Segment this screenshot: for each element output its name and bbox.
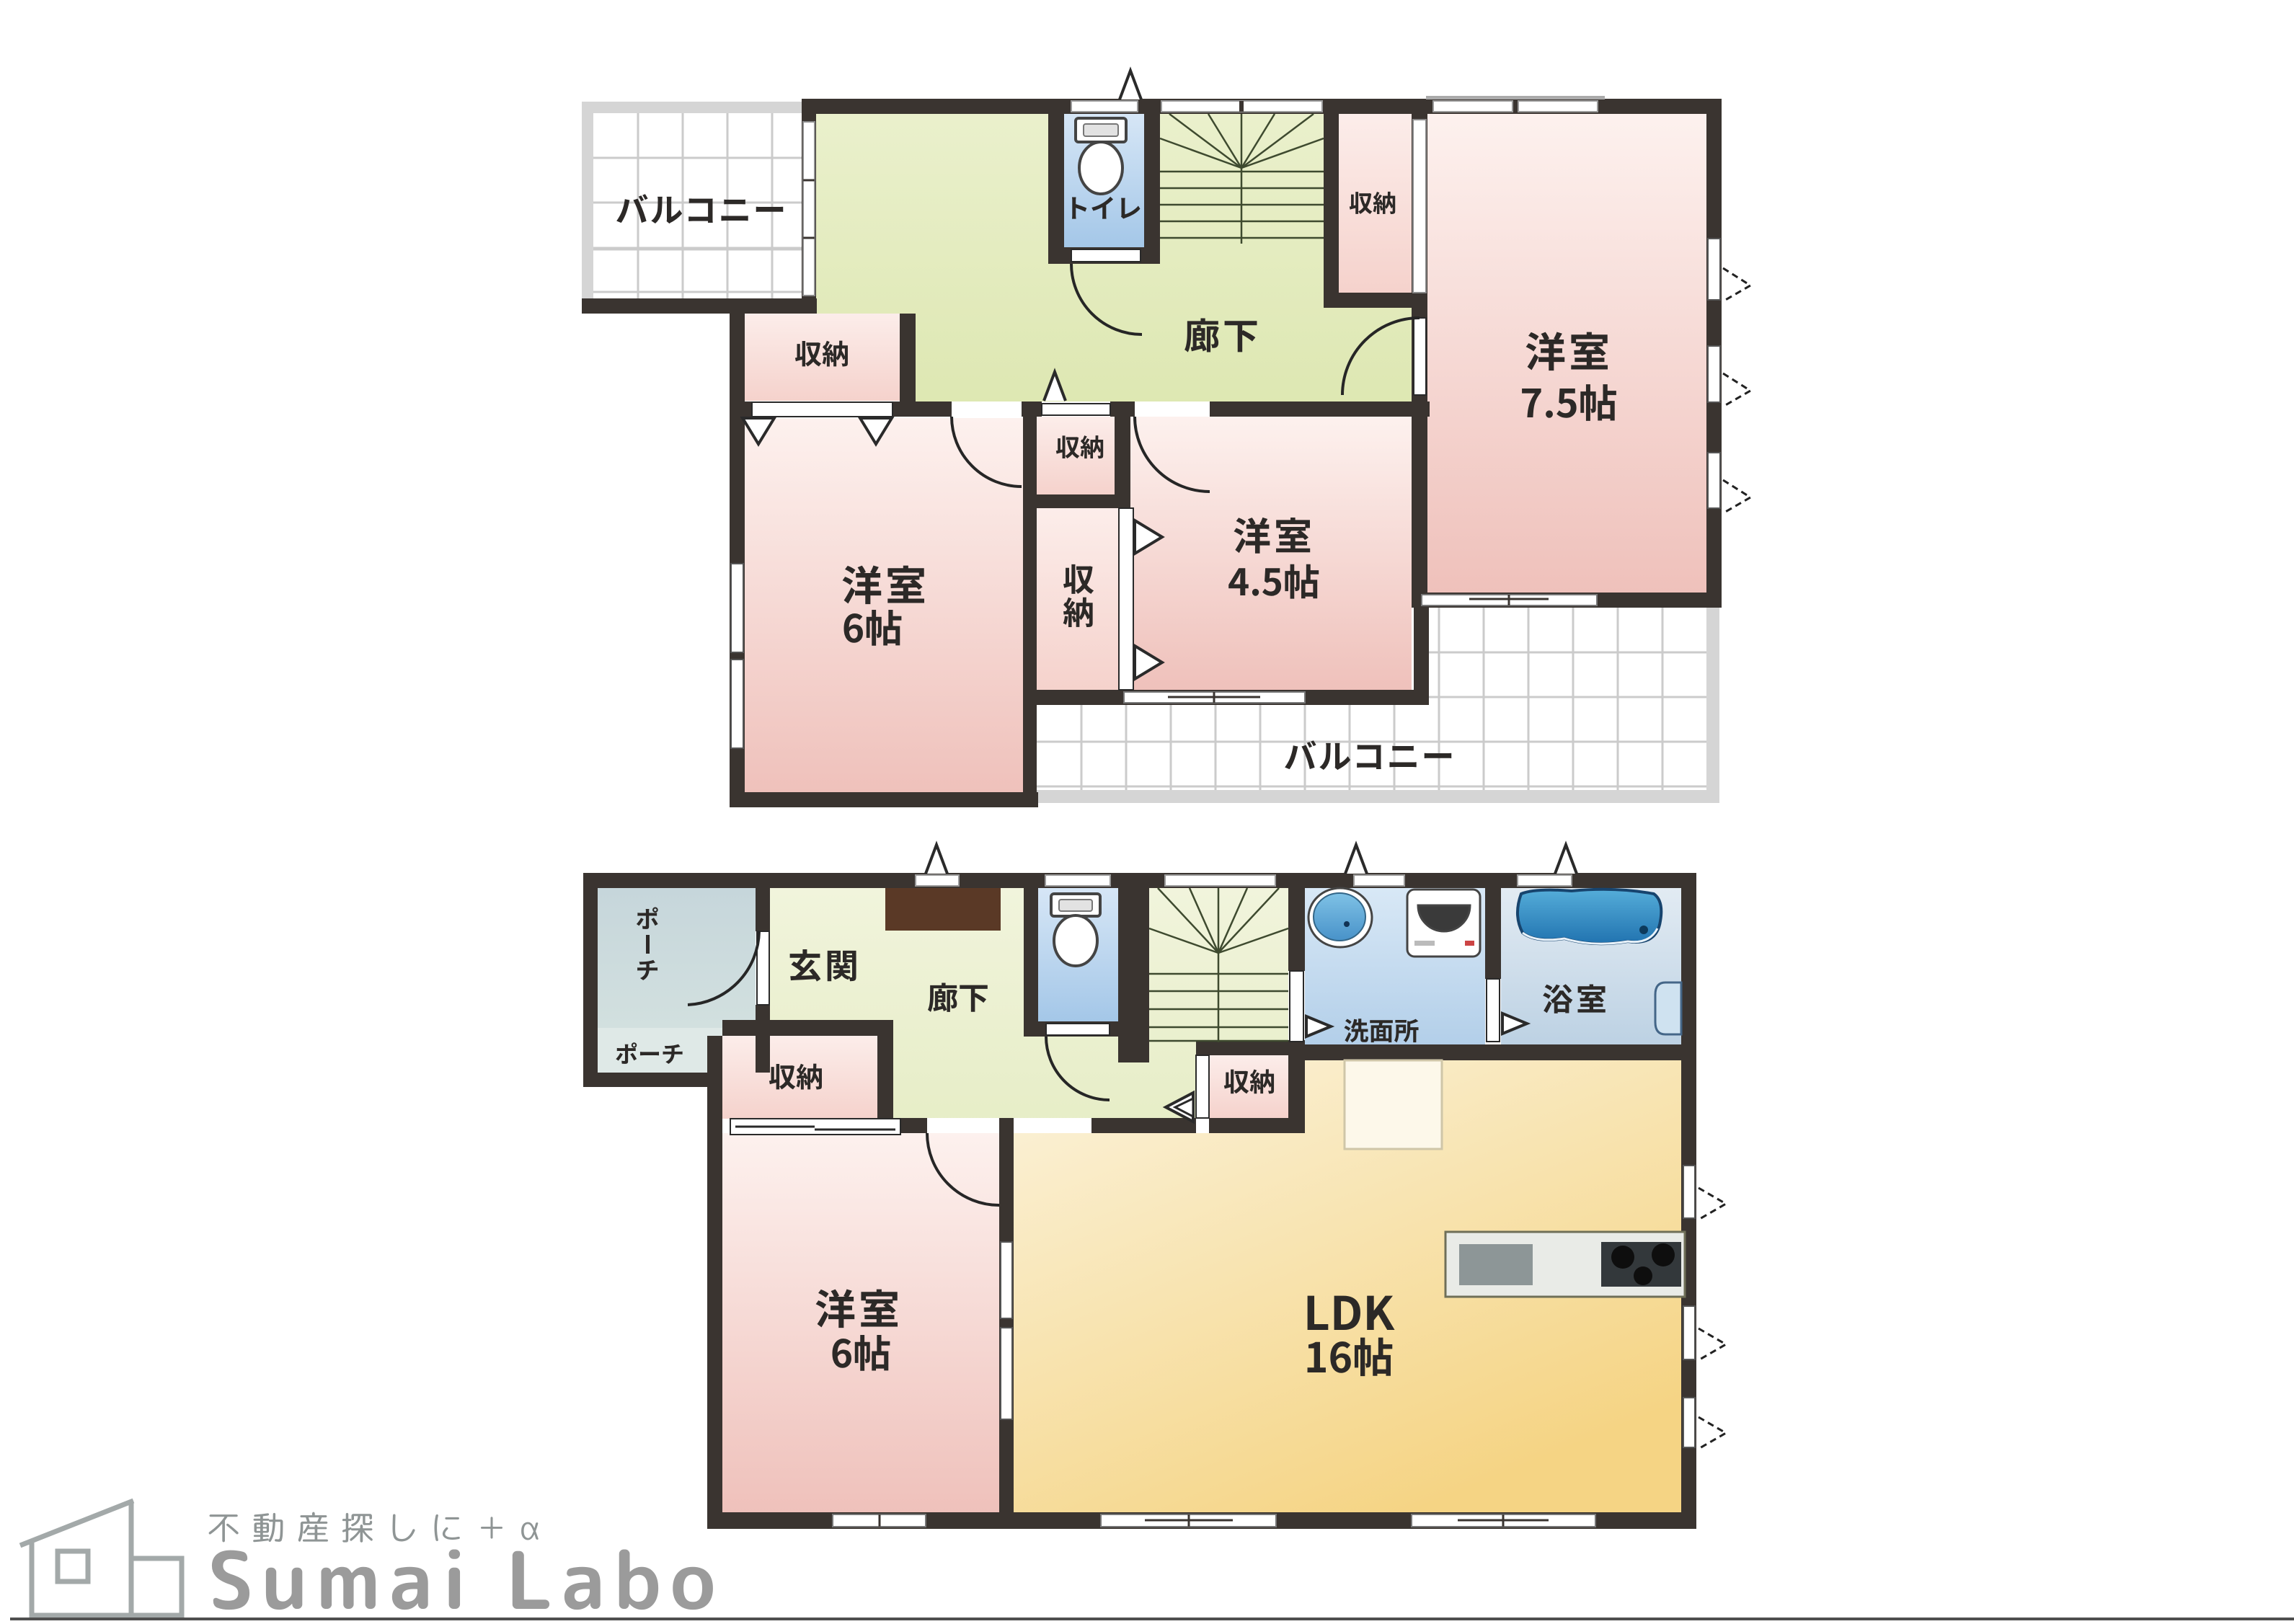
svg-text:6帖: 6帖 — [831, 1324, 891, 1379]
svg-text:収納: 収納 — [769, 1055, 823, 1095]
svg-text:廊下: 廊下 — [1184, 308, 1262, 360]
svg-text:チ: チ — [636, 951, 660, 986]
svg-text:バルコニー: バルコニー — [1283, 731, 1456, 778]
svg-text:玄関: 玄関 — [788, 939, 862, 988]
svg-text:収納: 収納 — [1349, 185, 1396, 219]
svg-text:収納: 収納 — [1223, 1062, 1275, 1099]
svg-text:7.5帖: 7.5帖 — [1520, 372, 1617, 429]
svg-text:収納: 収納 — [794, 332, 849, 372]
svg-text:洗面所: 洗面所 — [1343, 1011, 1419, 1048]
svg-text:洋室: 洋室 — [1525, 320, 1613, 379]
svg-text:バルコニー: バルコニー — [615, 185, 787, 232]
svg-text:Sumai Labo: Sumai Labo — [208, 1525, 724, 1624]
svg-text:廊下: 廊下 — [927, 974, 989, 1019]
svg-text:トイレ: トイレ — [1064, 188, 1142, 226]
svg-text:16帖: 16帖 — [1304, 1326, 1394, 1385]
svg-text:収納: 収納 — [1055, 428, 1104, 463]
svg-text:ポーチ: ポーチ — [615, 1037, 684, 1070]
svg-text:4.5帖: 4.5帖 — [1228, 553, 1320, 606]
svg-text:浴室: 浴室 — [1542, 975, 1610, 1020]
svg-text:納: 納 — [1063, 587, 1094, 634]
svg-text:6帖: 6帖 — [842, 599, 903, 654]
svg-text:ポ: ポ — [636, 900, 660, 935]
